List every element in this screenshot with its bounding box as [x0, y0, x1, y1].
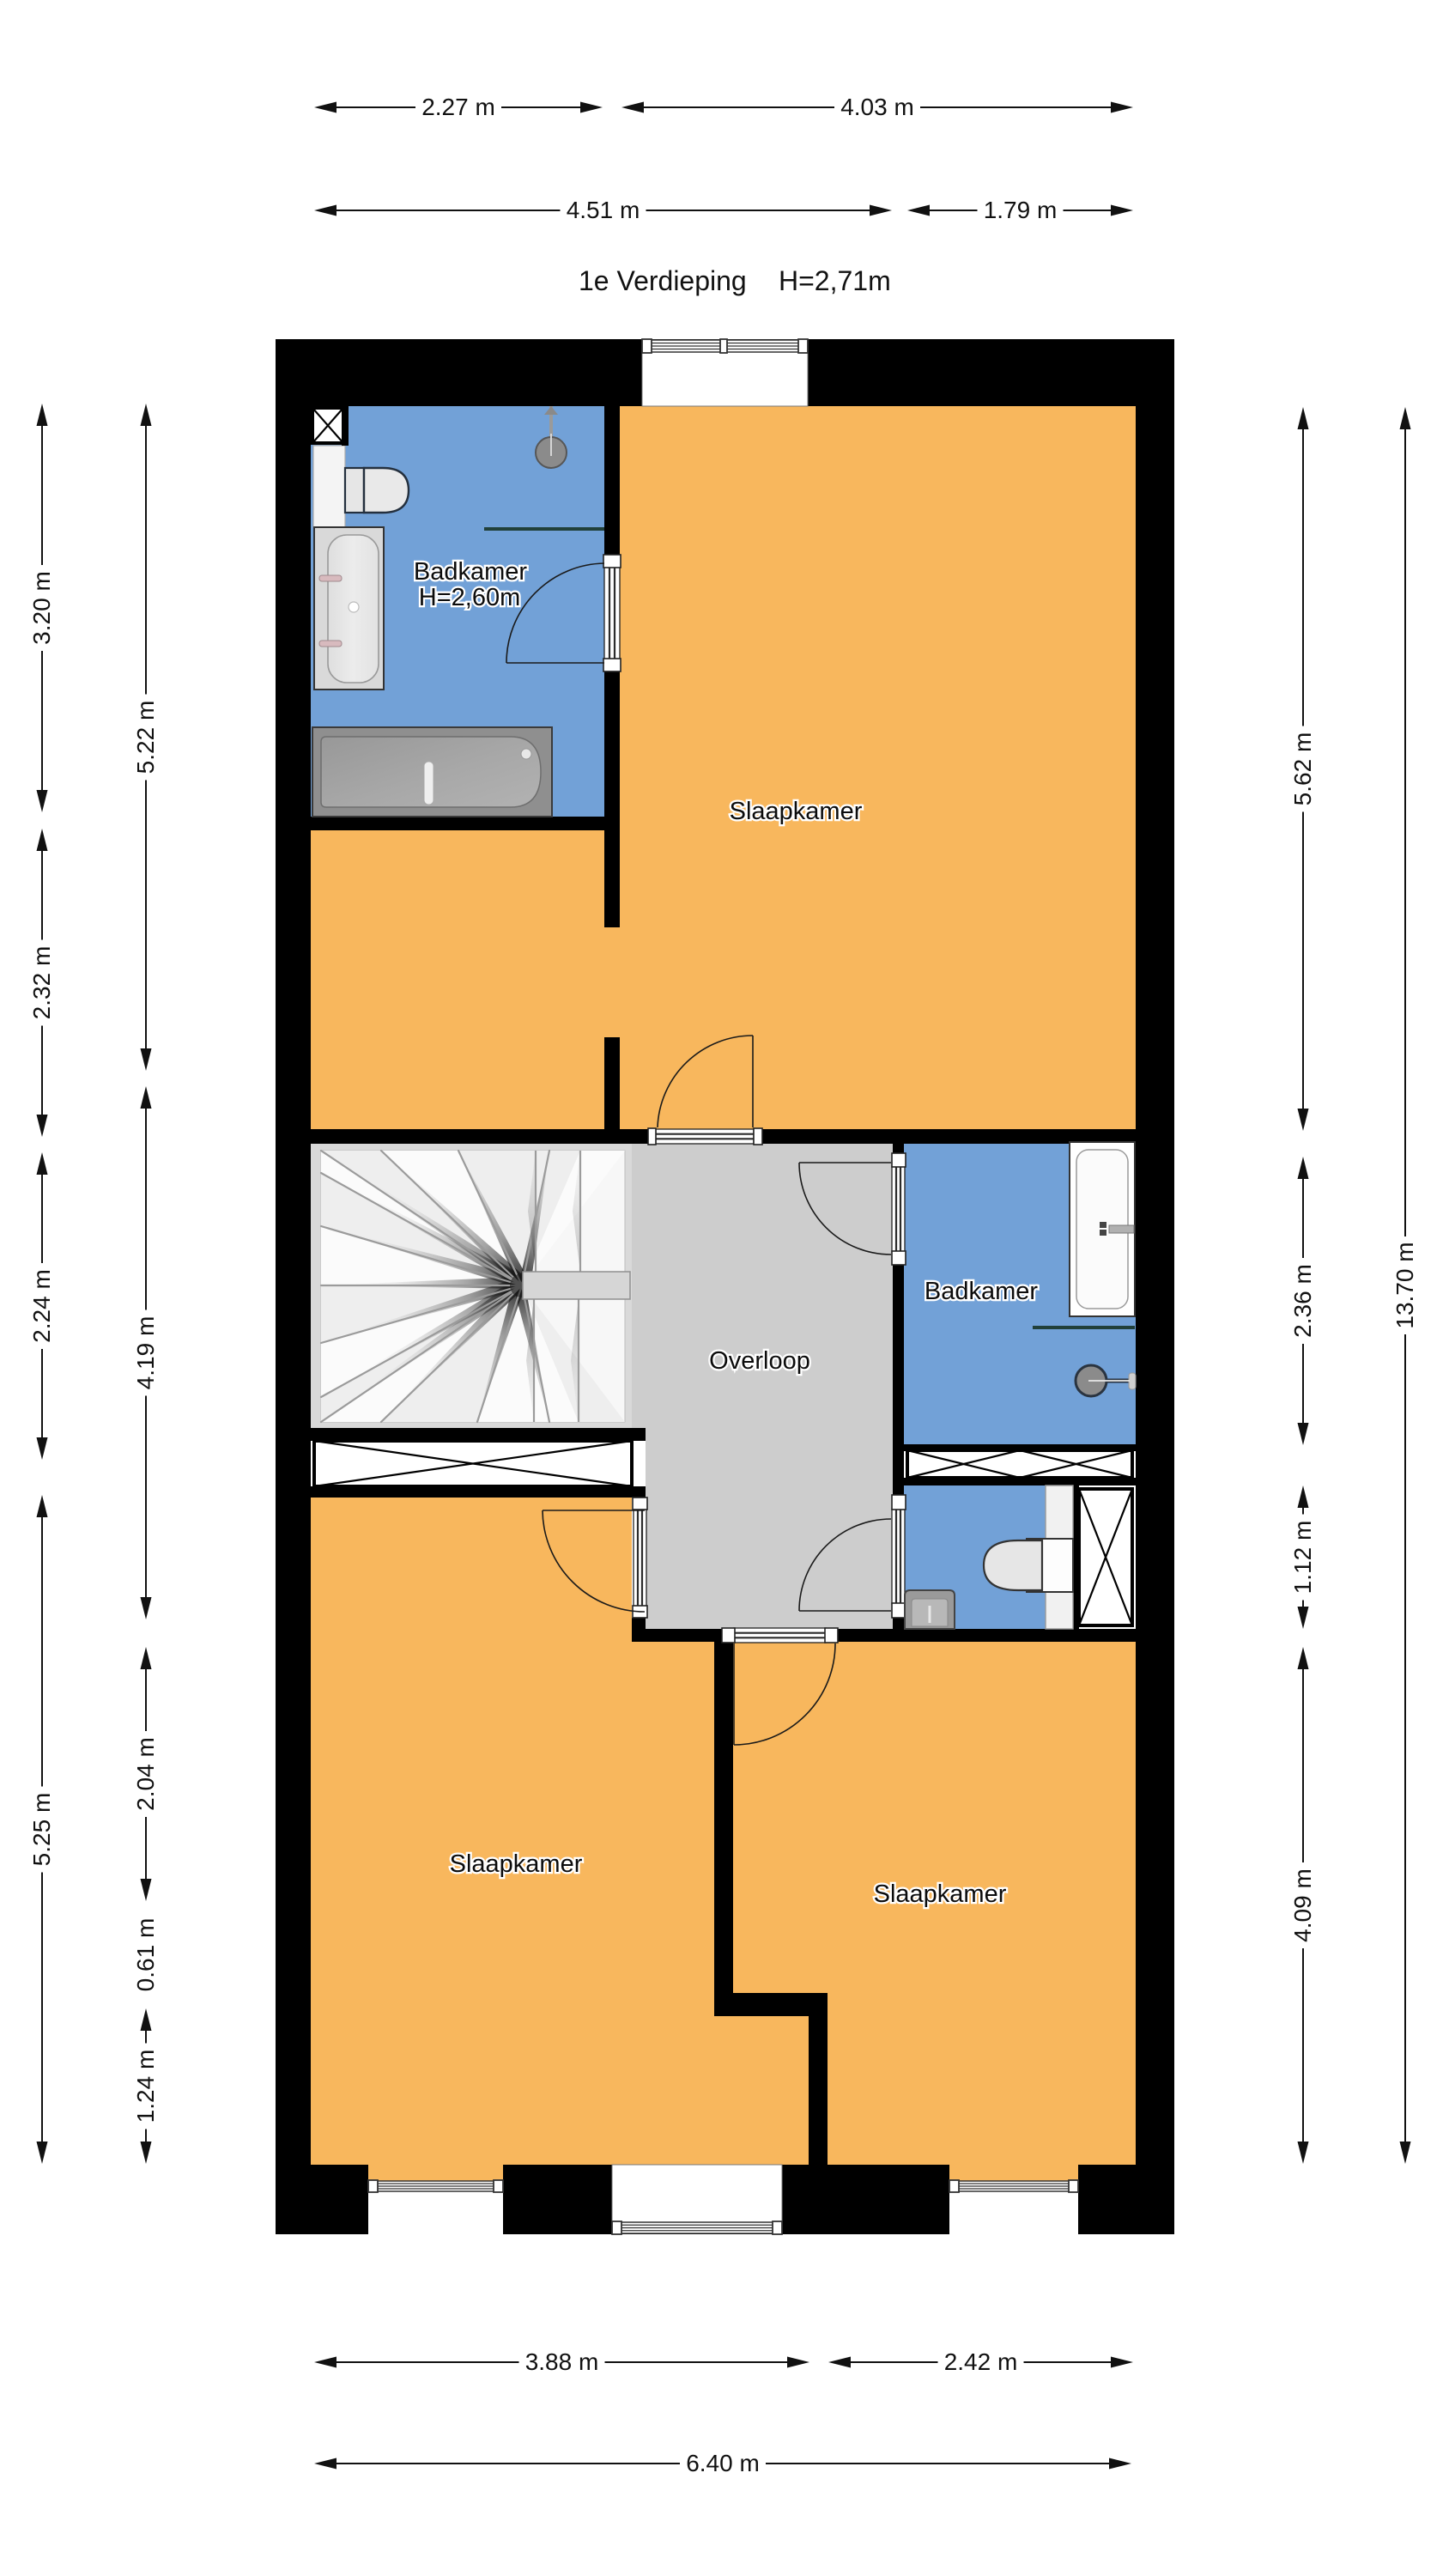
svg-text:4.09 m: 4.09 m: [1289, 1868, 1316, 1942]
svg-text:0.61 m: 0.61 m: [132, 1918, 159, 1992]
svg-text:3.20 m: 3.20 m: [28, 571, 55, 645]
svg-text:1e Verdieping: 1e Verdieping: [579, 265, 747, 296]
svg-text:2.36 m: 2.36 m: [1289, 1264, 1316, 1338]
svg-text:Badkamer: Badkamer: [414, 558, 528, 586]
svg-text:3.88 m: 3.88 m: [525, 2348, 599, 2375]
svg-text:5.25 m: 5.25 m: [28, 1793, 55, 1867]
svg-text:Overloop: Overloop: [709, 1347, 810, 1375]
svg-text:Slaapkamer: Slaapkamer: [874, 1880, 1007, 1908]
svg-text:6.40 m: 6.40 m: [686, 2450, 760, 2476]
svg-text:13.70 m: 13.70 m: [1391, 1242, 1418, 1328]
svg-text:2.04 m: 2.04 m: [132, 1737, 159, 1811]
svg-text:Slaapkamer: Slaapkamer: [730, 798, 863, 825]
svg-text:4.51 m: 4.51 m: [567, 197, 640, 223]
svg-text:H=2,71m: H=2,71m: [779, 265, 891, 296]
svg-text:2.32 m: 2.32 m: [28, 946, 55, 1020]
svg-text:1.79 m: 1.79 m: [984, 197, 1058, 223]
svg-text:5.22 m: 5.22 m: [132, 701, 159, 775]
svg-text:Badkamer: Badkamer: [925, 1278, 1039, 1305]
svg-text:Slaapkamer: Slaapkamer: [450, 1850, 583, 1878]
svg-text:2.27 m: 2.27 m: [421, 94, 495, 120]
svg-text:5.62 m: 5.62 m: [1289, 732, 1316, 806]
svg-text:2.42 m: 2.42 m: [944, 2348, 1018, 2375]
svg-text:4.03 m: 4.03 m: [840, 94, 914, 120]
svg-text:4.19 m: 4.19 m: [132, 1316, 159, 1390]
svg-text:1.24 m: 1.24 m: [132, 2050, 159, 2123]
svg-text:1.12 m: 1.12 m: [1289, 1521, 1316, 1595]
svg-text:H=2,60m: H=2,60m: [419, 584, 520, 611]
svg-text:2.24 m: 2.24 m: [28, 1269, 55, 1343]
